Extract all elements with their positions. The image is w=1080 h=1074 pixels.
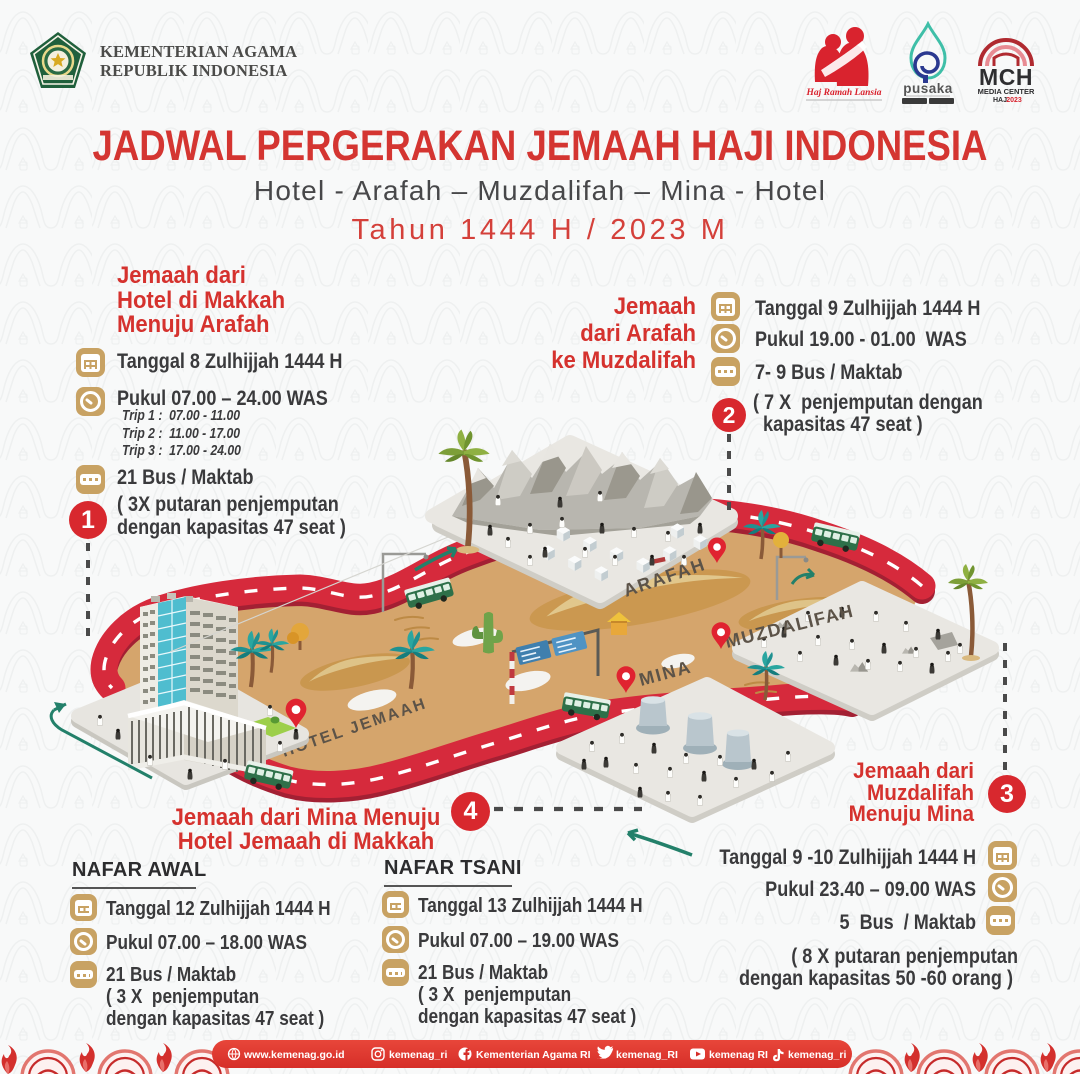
svg-text:kemenag_ri: kemenag_ri bbox=[788, 1049, 846, 1061]
svg-text:kemenag_RI: kemenag_RI bbox=[616, 1049, 678, 1061]
svg-text:www.kemenag.go.id: www.kemenag.go.id bbox=[243, 1049, 345, 1061]
svg-text:Kementerian Agama RI: Kementerian Agama RI bbox=[476, 1049, 591, 1061]
svg-text:kemenag RI: kemenag RI bbox=[709, 1049, 768, 1061]
svg-text:kemenag_ri: kemenag_ri bbox=[389, 1049, 447, 1061]
